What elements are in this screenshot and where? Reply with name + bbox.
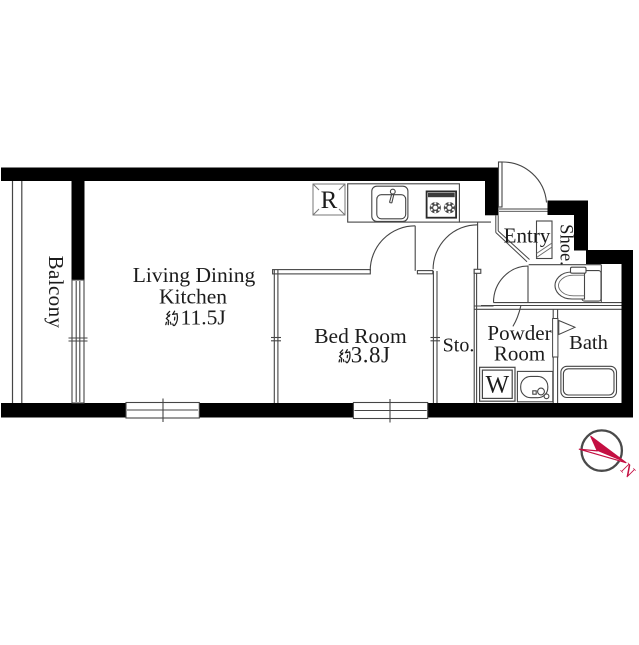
svg-text:3.8J: 3.8J xyxy=(351,343,391,368)
svg-text:Bath: Bath xyxy=(569,332,608,354)
svg-text:Room: Room xyxy=(494,342,545,366)
svg-text:11.5J: 11.5J xyxy=(181,306,226,330)
svg-text:R: R xyxy=(321,187,338,214)
svg-text:Balcony: Balcony xyxy=(44,256,68,329)
svg-text:Shoe.: Shoe. xyxy=(555,224,575,266)
svg-text:Sto.: Sto. xyxy=(443,335,475,357)
svg-text:W: W xyxy=(485,372,509,399)
svg-text:Living Dining: Living Dining xyxy=(133,263,256,287)
svg-text:Entry: Entry xyxy=(504,224,551,248)
